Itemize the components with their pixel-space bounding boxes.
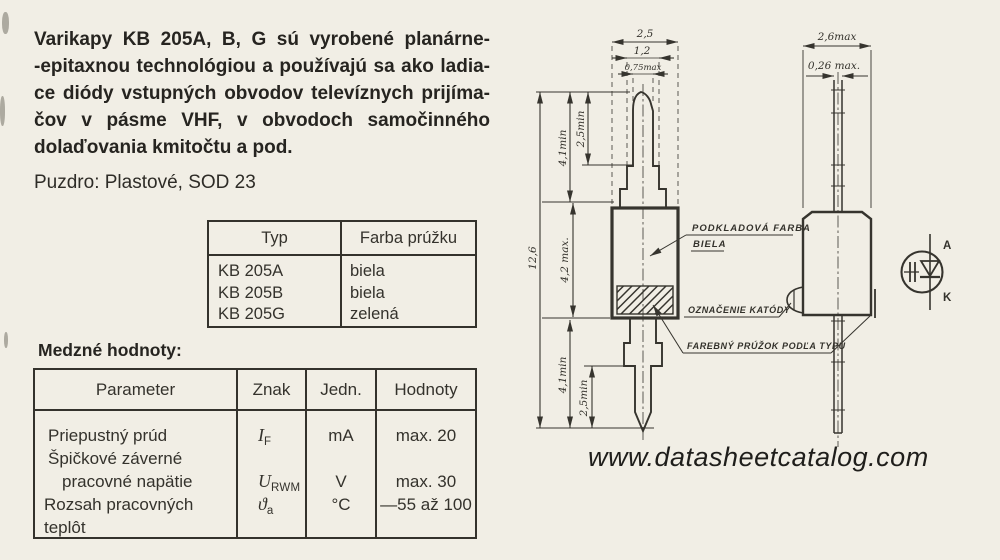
table-cell: max. 20	[377, 424, 475, 447]
side-view	[787, 72, 875, 447]
side-dimensions: 2,6max 0,26 max.	[803, 31, 871, 208]
datasheet-page: { "intro": { "lines": [ "Varikapy KB 205…	[0, 0, 1000, 560]
table-cell-empty	[238, 447, 305, 470]
table-cell: zelená	[342, 304, 475, 326]
varicap-symbol: A K	[902, 234, 953, 310]
symbol-sub: a	[267, 505, 274, 517]
table-cell: IF	[238, 424, 305, 447]
table-cell: max. 30	[377, 470, 475, 493]
dim-side-thickness: 0,26 max.	[808, 60, 860, 72]
scan-speckle	[2, 12, 9, 34]
limits-col-parameter: Priepustný prúd Špičkové záverné pracovn…	[35, 411, 238, 537]
dim-total-height: 12,6	[527, 246, 539, 270]
symbol-base: ϑ	[258, 494, 267, 514]
symbol-sub: RWM	[271, 482, 300, 494]
table-cell: KB 205G	[209, 304, 340, 326]
callout-base-color-1: PODKLADOVÁ FARBA	[692, 223, 811, 234]
limits-col-jedn: mA V °C	[307, 411, 377, 537]
package-body-side	[803, 212, 871, 315]
dim-body-width: 2,5	[636, 28, 654, 40]
limits-table: Parameter Znak Jedn. Hodnoty Priepustný …	[33, 368, 477, 539]
table-cell: mA	[307, 424, 375, 447]
table-cell-empty	[307, 447, 375, 470]
type-table-col-farba: biela biela zelená	[342, 256, 475, 326]
limits-col-znak: IF URWM ϑa	[238, 411, 307, 537]
dim-pin-bottom: 2,5min	[578, 379, 590, 417]
description-line: ce diódy vstupných obvodov televíznych p…	[34, 80, 490, 107]
dim-lead-bottom: 4,1min	[557, 356, 569, 394]
limits-header-jedn: Jedn.	[307, 370, 377, 411]
table-cell: biela	[342, 261, 475, 283]
package-drawing: 2,5 1,2 0,75max 12,6 4,1min 2,5min 4,2 m…	[500, 0, 1000, 560]
symbol-sub: F	[264, 436, 271, 448]
table-cell: V	[307, 470, 375, 493]
table-cell: Špičkové záverné	[35, 447, 236, 470]
limits-header-hodnoty: Hodnoty	[377, 370, 475, 411]
description-line: čov v pásme VHF, v obvodoch samočinného	[34, 107, 490, 134]
type-color-table: Typ Farba prúžku KB 205A KB 205B KB 205G…	[207, 220, 477, 328]
dim-collar-width: 1,2	[634, 45, 651, 57]
table-cell: Priepustný prúd	[35, 424, 236, 447]
table-cell: URWM	[238, 470, 305, 493]
type-table-header-typ: Typ	[209, 222, 342, 256]
dim-pin-width: 0,75max	[625, 63, 662, 73]
callouts: PODKLADOVÁ FARBA BIELA OZNAČENIE KATÓDY …	[650, 223, 870, 353]
scan-speckle	[0, 96, 5, 126]
dim-pin-top: 2,5min	[575, 110, 587, 148]
table-cell: —55 až 100	[377, 493, 475, 516]
package-line: Puzdro: Plastové, SOD 23	[34, 172, 256, 194]
limits-header-znak: Znak	[238, 370, 307, 411]
cathode-stripe-hatch	[617, 286, 673, 314]
description-line: -epitaxnou technológiou a používajú sa a…	[34, 53, 490, 80]
table-cell: KB 205A	[209, 261, 340, 283]
scan-speckle	[4, 332, 8, 348]
front-view	[612, 84, 678, 440]
dim-side-width: 2,6max	[817, 31, 857, 43]
cathode-label: K	[943, 292, 952, 304]
limits-title: Medzné hodnoty:	[38, 340, 182, 361]
callout-base-color-2: BIELA	[693, 239, 727, 250]
table-cell: °C	[307, 493, 375, 516]
type-table-col-typ: KB 205A KB 205B KB 205G	[209, 256, 342, 326]
front-dimensions: 2,5 1,2 0,75max 12,6 4,1min 2,5min 4,2 m…	[527, 28, 678, 428]
dim-body-height: 4,2 max.	[559, 237, 571, 284]
table-cell: KB 205B	[209, 283, 340, 305]
table-cell: pracovné napätie	[35, 470, 236, 493]
limits-header-parameter: Parameter	[35, 370, 238, 411]
table-cell: Rozsah pracovných teplôt	[35, 493, 236, 516]
callout-stripe: FAREBNÝ PRÚŽOK PODĽA TYPU	[687, 340, 846, 351]
table-cell-empty	[377, 447, 475, 470]
dim-lead-top: 4,1min	[557, 129, 569, 167]
description-line: Varikapy KB 205A, B, G sú vyrobené planá…	[34, 26, 490, 53]
anode-label: A	[943, 240, 951, 252]
type-table-header-farba: Farba prúžku	[342, 222, 475, 256]
table-cell: biela	[342, 283, 475, 305]
limits-col-hodnoty: max. 20 max. 30 —55 až 100	[377, 411, 475, 537]
description-line: dolaďovania kmitočtu a pod.	[34, 134, 490, 161]
table-cell: ϑa	[238, 493, 305, 516]
symbol-base: U	[258, 471, 271, 491]
callout-cathode-mark: OZNAČENIE KATÓDY	[688, 304, 791, 315]
watermark-url: www.datasheetcatalog.com	[588, 442, 929, 473]
description-paragraph: Varikapy KB 205A, B, G sú vyrobené planá…	[34, 26, 490, 161]
